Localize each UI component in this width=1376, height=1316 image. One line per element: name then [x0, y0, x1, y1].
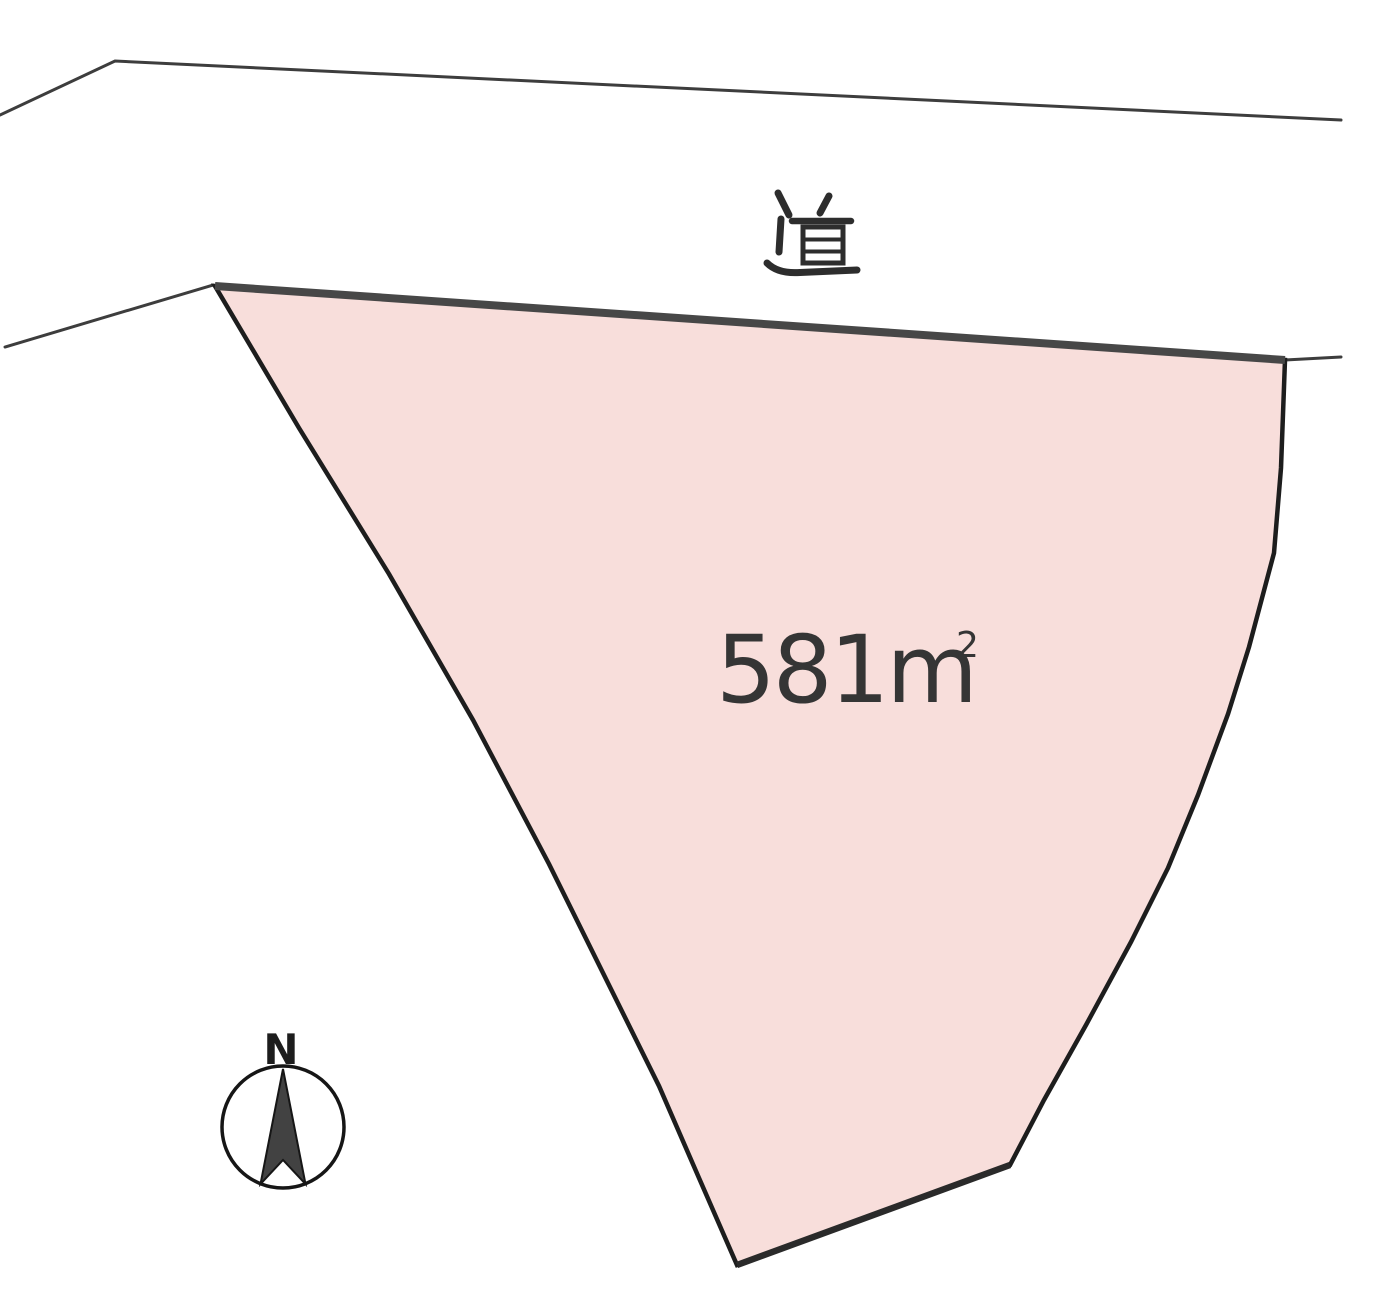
road-label: 道: [767, 193, 857, 273]
land-plot-polygon: [215, 286, 1285, 1265]
compass-needle-icon: [261, 1069, 306, 1184]
road-label-stroke: [778, 193, 789, 215]
site-plan-canvas: 道 581m 2 N: [0, 0, 1376, 1316]
road-label-stroke: [803, 227, 843, 263]
road-boundary-upper: [0, 61, 1341, 120]
site-plan-page: 道 581m 2 N: [0, 0, 1376, 1316]
road-label-stroke: [820, 196, 829, 213]
road-boundary-right-stub: [1285, 357, 1341, 360]
road-label-stroke: [779, 219, 781, 252]
plot-area-label: 581m: [716, 616, 975, 725]
plot-area-exponent: 2: [956, 625, 979, 666]
compass: N: [222, 1025, 344, 1188]
road-boundary-left: [5, 285, 213, 347]
